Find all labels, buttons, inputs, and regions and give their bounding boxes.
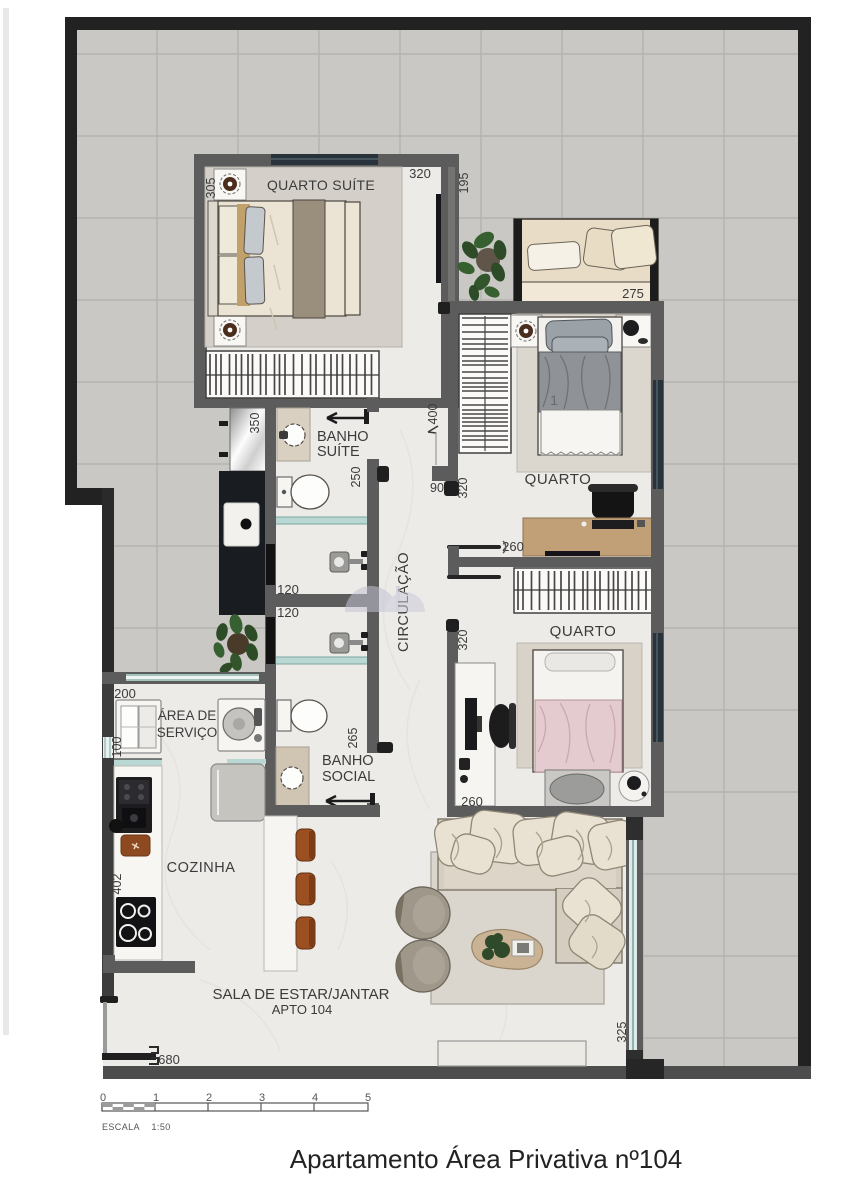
svg-text:SALA DE ESTAR/JANTAR: SALA DE ESTAR/JANTAR — [213, 986, 390, 1003]
svg-text:200: 200 — [114, 686, 136, 701]
svg-text:4: 4 — [312, 1092, 318, 1104]
svg-text:5: 5 — [365, 1092, 371, 1104]
svg-text:0: 0 — [100, 1092, 106, 1104]
svg-text:2: 2 — [206, 1092, 212, 1104]
svg-text:1: 1 — [550, 392, 558, 408]
svg-text:Apartamento Área Privativa nº1: Apartamento Área Privativa nº104 — [290, 1144, 683, 1174]
svg-text:1: 1 — [153, 1092, 159, 1104]
svg-text:3: 3 — [259, 1092, 265, 1104]
svg-text:402: 402 — [110, 874, 124, 895]
svg-text:SOCIAL: SOCIAL — [322, 769, 375, 785]
svg-text:QUARTO: QUARTO — [550, 623, 617, 640]
svg-text:COZINHA: COZINHA — [167, 860, 236, 876]
svg-text:120: 120 — [277, 605, 299, 620]
svg-text:APTO 104: APTO 104 — [272, 1002, 332, 1017]
svg-text:250: 250 — [349, 467, 363, 488]
svg-text:195: 195 — [457, 173, 471, 194]
svg-text:ÁREA DE: ÁREA DE — [158, 708, 217, 723]
svg-text:400: 400 — [426, 404, 440, 425]
svg-text:320: 320 — [456, 478, 470, 499]
svg-text:BANHO: BANHO — [317, 429, 369, 445]
svg-text:305: 305 — [204, 178, 218, 199]
svg-text:265: 265 — [346, 728, 360, 749]
svg-text:QUARTO SUÍTE: QUARTO SUÍTE — [267, 177, 375, 193]
svg-text:100: 100 — [110, 737, 124, 758]
svg-text:ESCALA 1:50: ESCALA 1:50 — [102, 1122, 171, 1132]
svg-text:325: 325 — [615, 1022, 629, 1043]
svg-text:350: 350 — [248, 413, 262, 434]
svg-text:680: 680 — [158, 1052, 180, 1067]
svg-text:275: 275 — [622, 286, 644, 301]
svg-text:QUARTO: QUARTO — [525, 471, 592, 488]
svg-text:120: 120 — [277, 582, 299, 597]
svg-text:SUÍTE: SUÍTE — [317, 443, 360, 460]
svg-text:320: 320 — [456, 630, 470, 651]
svg-text:SERVIÇO: SERVIÇO — [157, 725, 218, 740]
svg-text:BANHO: BANHO — [322, 753, 374, 769]
svg-text:320: 320 — [409, 166, 431, 181]
svg-text:90: 90 — [430, 481, 444, 495]
